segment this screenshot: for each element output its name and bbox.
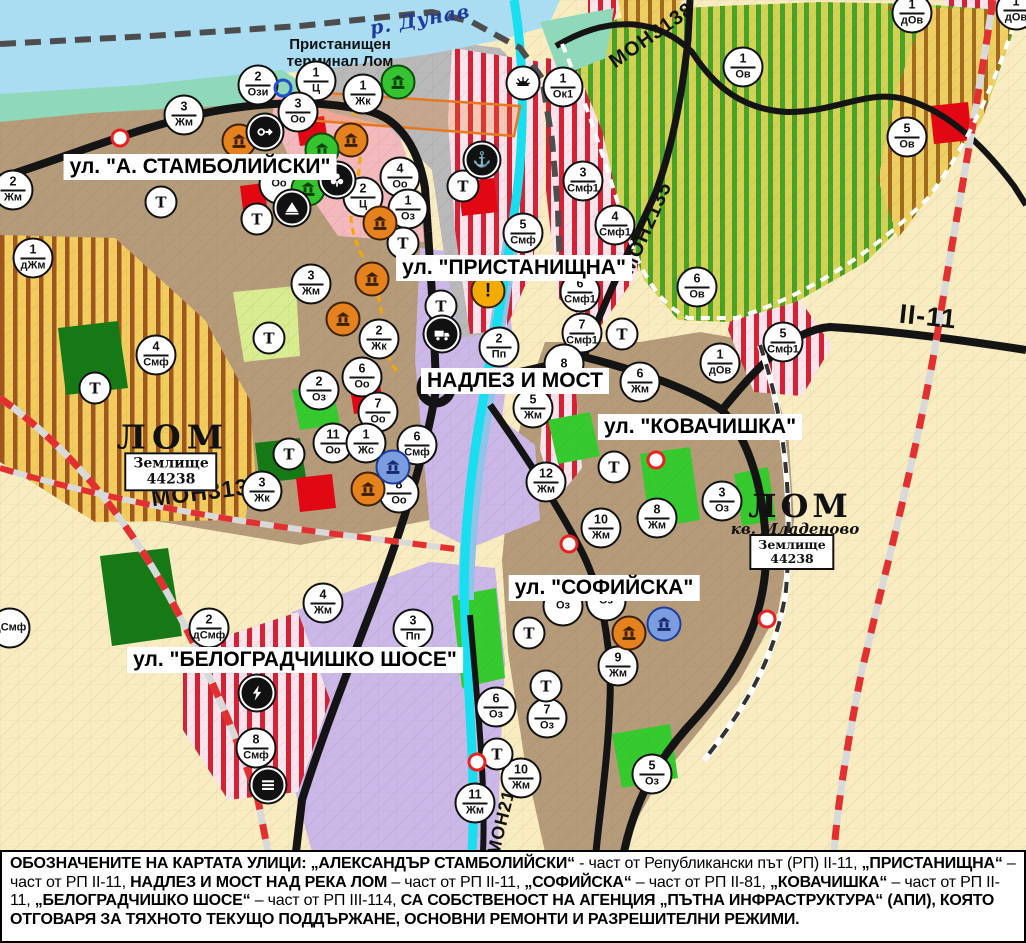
- zone-marker-number: 2: [255, 71, 262, 84]
- zone-marker-code: Пп: [406, 632, 421, 644]
- zone-marker-code: Смф: [143, 358, 169, 370]
- landzone-number: 44238: [147, 471, 196, 487]
- zone-marker-code: дОв: [1005, 13, 1026, 25]
- landzone-word: Землище: [758, 537, 825, 552]
- caption-text: – част от РП II-81,: [632, 874, 770, 891]
- transport-marker: Т: [606, 318, 639, 351]
- blue-ring-marker: [274, 79, 293, 98]
- caption-street-name: „БЕЛОГРАДЧИШКО ШОСЕ“: [35, 892, 251, 909]
- monument-icon: [376, 450, 411, 485]
- zone-marker: 1дЖм: [13, 238, 54, 279]
- transport-marker: Т: [273, 438, 306, 471]
- zone-marker-number: 8: [654, 504, 661, 517]
- zone-marker: 3Пп: [393, 609, 434, 650]
- zone-marker-number: 3: [259, 477, 266, 490]
- zone-marker-code: Оз: [312, 393, 326, 405]
- zone-marker-number: 2: [376, 325, 383, 338]
- zone-marker-code: Жм: [466, 806, 484, 818]
- zone-marker-number: 5: [520, 219, 527, 232]
- zone-marker-number: 6: [493, 693, 500, 706]
- zone-marker-code: Жм: [537, 485, 555, 497]
- zone-marker-number: 5: [530, 394, 537, 407]
- street-label: НАДЛЕЗ И МОСТ: [421, 368, 609, 394]
- zone-marker-number: 3: [181, 101, 188, 114]
- zone-marker-number: 1: [405, 195, 412, 208]
- zone-marker: 9Жм: [598, 646, 639, 687]
- zone-marker-number: 2: [496, 333, 503, 346]
- zone-marker-number: 1: [1013, 0, 1020, 9]
- zone-marker-code: Оз: [645, 777, 659, 789]
- red-dot-marker: [468, 753, 487, 772]
- zone-marker-code: Оо: [290, 115, 305, 127]
- zone-marker: 5Оз: [632, 754, 673, 795]
- zone-marker-code: Оз: [715, 504, 729, 516]
- zone-marker-code: Жм: [175, 118, 193, 130]
- zone-marker-code: Ок1: [553, 90, 573, 102]
- zone-marker-number: 1: [909, 0, 916, 12]
- zone-marker-code: Оз: [556, 600, 570, 612]
- zone-marker-code: Жм: [631, 385, 649, 397]
- zone-marker-code: Оз: [401, 212, 415, 224]
- zone-marker-code: Жм: [609, 669, 627, 681]
- landzone-box-left: Землище 44238: [124, 452, 217, 491]
- zone-marker: 4Смф: [136, 335, 177, 376]
- transport-marker: Т: [530, 670, 563, 703]
- zone-marker-code: Жк: [355, 97, 370, 109]
- caption-street-name: НАДЛЕЗ И МОСТ НАД РЕКА ЛОМ: [130, 874, 387, 891]
- transport-marker: Т: [513, 617, 546, 650]
- tumulus-icon: [275, 191, 310, 226]
- zone-marker-number: 1: [717, 349, 724, 362]
- zone-marker: 2Жк: [359, 319, 400, 360]
- street-label: ул. "ПРИСТАНИЩНА": [396, 255, 632, 281]
- zone-marker-number: 6: [694, 273, 701, 286]
- zone-marker: 8Смф: [236, 728, 277, 769]
- zone-marker-code: Смф1: [767, 345, 799, 357]
- zone-marker-number: 10: [514, 764, 528, 777]
- circle-arrow-icon: [248, 115, 283, 150]
- zone-marker-code: Ц: [312, 84, 320, 96]
- zone-marker-code: Жк: [371, 342, 386, 354]
- zone-marker: 3Жм: [164, 95, 205, 136]
- zone-marker-number: 4: [153, 341, 160, 354]
- red-dot-marker: [560, 535, 579, 554]
- street-label: ул. "БЕЛОГРАДЧИШКО ШОСЕ": [127, 647, 463, 673]
- zone-marker-number: 3: [410, 615, 417, 628]
- zone-marker-code: Смф1: [567, 184, 599, 196]
- zone-marker: 3Жм: [291, 264, 332, 305]
- zone-marker-code: дОв: [901, 16, 923, 28]
- planning-map-screenshot: р. Дунав Пристанищен терминал Лом ЛОМ ЛО…: [0, 0, 1026, 943]
- zone-marker: 5Смф1: [763, 322, 804, 363]
- street-label: ул. "А. СТАМБОЛИЙСКИ": [64, 154, 337, 180]
- zone-marker-code: Ов: [899, 140, 914, 152]
- red-dot-marker: [111, 129, 130, 148]
- zone-marker-number: 1: [313, 67, 320, 80]
- zone-marker-code: Смф1: [599, 228, 631, 240]
- zone-marker: 4Жм: [303, 583, 344, 624]
- transport-marker: Т: [145, 186, 178, 219]
- zone-marker: 2Ози: [238, 65, 279, 106]
- zone-marker: 1дОв: [700, 343, 741, 384]
- zone-marker-number: 2: [316, 376, 323, 389]
- zone-marker-code: Ц: [359, 200, 367, 212]
- transport-marker: Т: [598, 451, 631, 484]
- road-code-label: II-11: [898, 299, 958, 336]
- street-label: ул. "КОВАЧИШКА": [598, 414, 802, 440]
- zone-marker-code: Пп: [492, 350, 507, 362]
- zone-marker-number: 5: [904, 123, 911, 136]
- zone-marker: 4Смф1: [595, 205, 636, 246]
- street-label: ул. "СОФИЙСКА": [509, 575, 700, 601]
- zone-marker-code: Жм: [302, 287, 320, 299]
- city-label-lom: ЛОМ: [117, 418, 229, 457]
- zone-marker-number: 7: [544, 704, 551, 717]
- monument-icon: [355, 262, 390, 297]
- zone-marker-number: 4: [320, 589, 327, 602]
- zone-marker-number: 3: [719, 487, 726, 500]
- zone-marker: 11Жм: [455, 783, 496, 824]
- zone-marker-number: 7: [579, 319, 586, 332]
- zone-marker-number: 2: [10, 176, 17, 189]
- zone-marker-code: Жм: [512, 781, 530, 793]
- zone-marker: 1Жк: [343, 74, 384, 115]
- zone-marker: 3Оз: [702, 481, 743, 522]
- zone-marker: 6Ов: [677, 267, 718, 308]
- zone-marker-code: Оз: [489, 710, 503, 722]
- monument-icon: [363, 206, 398, 241]
- zone-marker-code: Жс: [358, 446, 374, 458]
- anchor-icon: ⚓: [465, 143, 500, 178]
- zone-marker-code: Ов: [735, 70, 750, 82]
- zone-marker: 2Оз: [299, 370, 340, 411]
- caption-text: – част от РП III-114,: [250, 892, 400, 909]
- zone-marker-number: 11: [468, 789, 481, 802]
- zone-marker-code: Оз: [540, 721, 554, 733]
- zone-marker-number: 2: [360, 183, 367, 196]
- zone-marker-code: Жм: [524, 411, 542, 423]
- zone-marker-number: 6: [414, 431, 421, 444]
- zone-marker-number: 5: [780, 328, 787, 341]
- zone-marker-number: 6: [637, 368, 644, 381]
- landzone-box-right: Землище 44238: [749, 534, 834, 570]
- caption-street-name: „СОФИЙСКА“: [524, 874, 631, 891]
- zone-marker-code: дЖм: [20, 261, 45, 273]
- zone-marker: 1Ок1: [543, 67, 584, 108]
- zone-marker-code: Ози: [248, 88, 269, 100]
- landzone-number: 44238: [770, 551, 814, 566]
- zone-marker-code: Оо: [354, 380, 369, 392]
- landzone-word: Землище: [133, 455, 208, 471]
- zone-marker-number: 9: [615, 652, 622, 665]
- zone-marker-number: 1: [560, 73, 567, 86]
- zone-marker-code: Жм: [592, 531, 610, 543]
- truck-icon: [425, 317, 460, 352]
- zone-marker: 5Смф: [503, 213, 544, 254]
- zone-marker-code: дСмф: [0, 622, 26, 634]
- red-dot-marker: [647, 451, 666, 470]
- zone-marker-number: 12: [539, 468, 553, 481]
- zone-marker-number: 3: [308, 270, 315, 283]
- zone-marker: 12Жм: [526, 462, 567, 503]
- zone-marker-number: 1: [363, 429, 370, 442]
- zone-marker: 3Оо: [278, 92, 319, 133]
- zone-marker: 1Ов: [723, 47, 764, 88]
- power-icon: [240, 676, 275, 711]
- zone-marker-code: Оо: [325, 446, 340, 458]
- port-sun-icon: [506, 66, 541, 101]
- transport-marker: Т: [241, 203, 274, 236]
- zone-marker: 6Жм: [620, 362, 661, 403]
- zone-marker-number: 1: [360, 80, 367, 93]
- map-canvas[interactable]: р. Дунав Пристанищен терминал Лом ЛОМ ЛО…: [0, 0, 1026, 852]
- monument-icon: [612, 616, 647, 651]
- port-terminal-line1: Пристанищен: [289, 36, 391, 53]
- zone-marker-code: Оо: [391, 496, 406, 508]
- zone-marker-number: 1: [740, 53, 747, 66]
- zone-marker-number: 1: [30, 244, 37, 257]
- zone-marker: 7Оз: [527, 698, 568, 739]
- dashes-icon: [251, 768, 286, 803]
- zone-marker-code: Смф: [510, 236, 536, 248]
- zone-marker-number: 7: [375, 398, 382, 411]
- zone-marker-number: 4: [397, 163, 404, 176]
- zone-marker-code: дОв: [709, 366, 731, 378]
- zone-marker-code: Смф1: [564, 295, 596, 307]
- caption-text: - част от Републикански път (РП) II-11,: [575, 855, 862, 872]
- zone-marker-code: Ов: [689, 290, 704, 302]
- zone-marker-code: Смф: [243, 751, 269, 763]
- caption-street-name: „ПРИСТАНИЩНА“: [862, 855, 1003, 872]
- monument-icon: [381, 65, 416, 100]
- zone-marker: 2дСмф: [189, 608, 230, 649]
- map-legend-caption: ОБОЗНАЧЕНИТЕ НА КАРТАТА УЛИЦИ: „АЛЕКСАНД…: [0, 850, 1026, 943]
- zone-marker: 8Жм: [637, 498, 678, 539]
- red-dot-marker: [758, 610, 777, 629]
- zone-marker-number: 10: [594, 514, 608, 527]
- zone-marker: 3Смф1: [563, 161, 604, 202]
- transport-marker: Т: [253, 322, 286, 355]
- caption-street-name: „КОВАЧИШКА“: [770, 874, 887, 891]
- zone-marker-code: Жк: [254, 494, 269, 506]
- caption-text: – част от РП II-11,: [387, 874, 524, 891]
- caption-street-name: ОБОЗНАЧЕНИТЕ НА КАРТАТА УЛИЦИ: „АЛЕКСАНД…: [10, 855, 575, 872]
- transport-marker: Т: [79, 372, 112, 405]
- zone-marker-code: Жм: [648, 521, 666, 533]
- zone-marker: 6Оз: [476, 687, 517, 728]
- zone-marker-number: 4: [612, 211, 619, 224]
- zone-marker-number: 8: [253, 734, 260, 747]
- zone-marker-number: 3: [580, 167, 587, 180]
- zone-marker-number: 11: [326, 429, 339, 442]
- zone-marker: 3Жк: [242, 471, 283, 512]
- zone-marker-number: 2: [206, 614, 213, 627]
- monument-icon: [647, 607, 682, 642]
- zone-marker-number: 6: [359, 363, 366, 376]
- zone-marker-code: Жм: [314, 606, 332, 618]
- zone-marker-code: дСмф: [193, 631, 226, 643]
- zone-marker-number: 5: [649, 760, 656, 773]
- zone-marker: 2Пп: [479, 327, 520, 368]
- zone-marker: 10Жм: [581, 508, 622, 549]
- zone-marker: 5Ов: [887, 117, 928, 158]
- zone-marker-code: Жм: [4, 193, 22, 205]
- monument-icon: [326, 302, 361, 337]
- zone-marker-number: 3: [295, 98, 302, 111]
